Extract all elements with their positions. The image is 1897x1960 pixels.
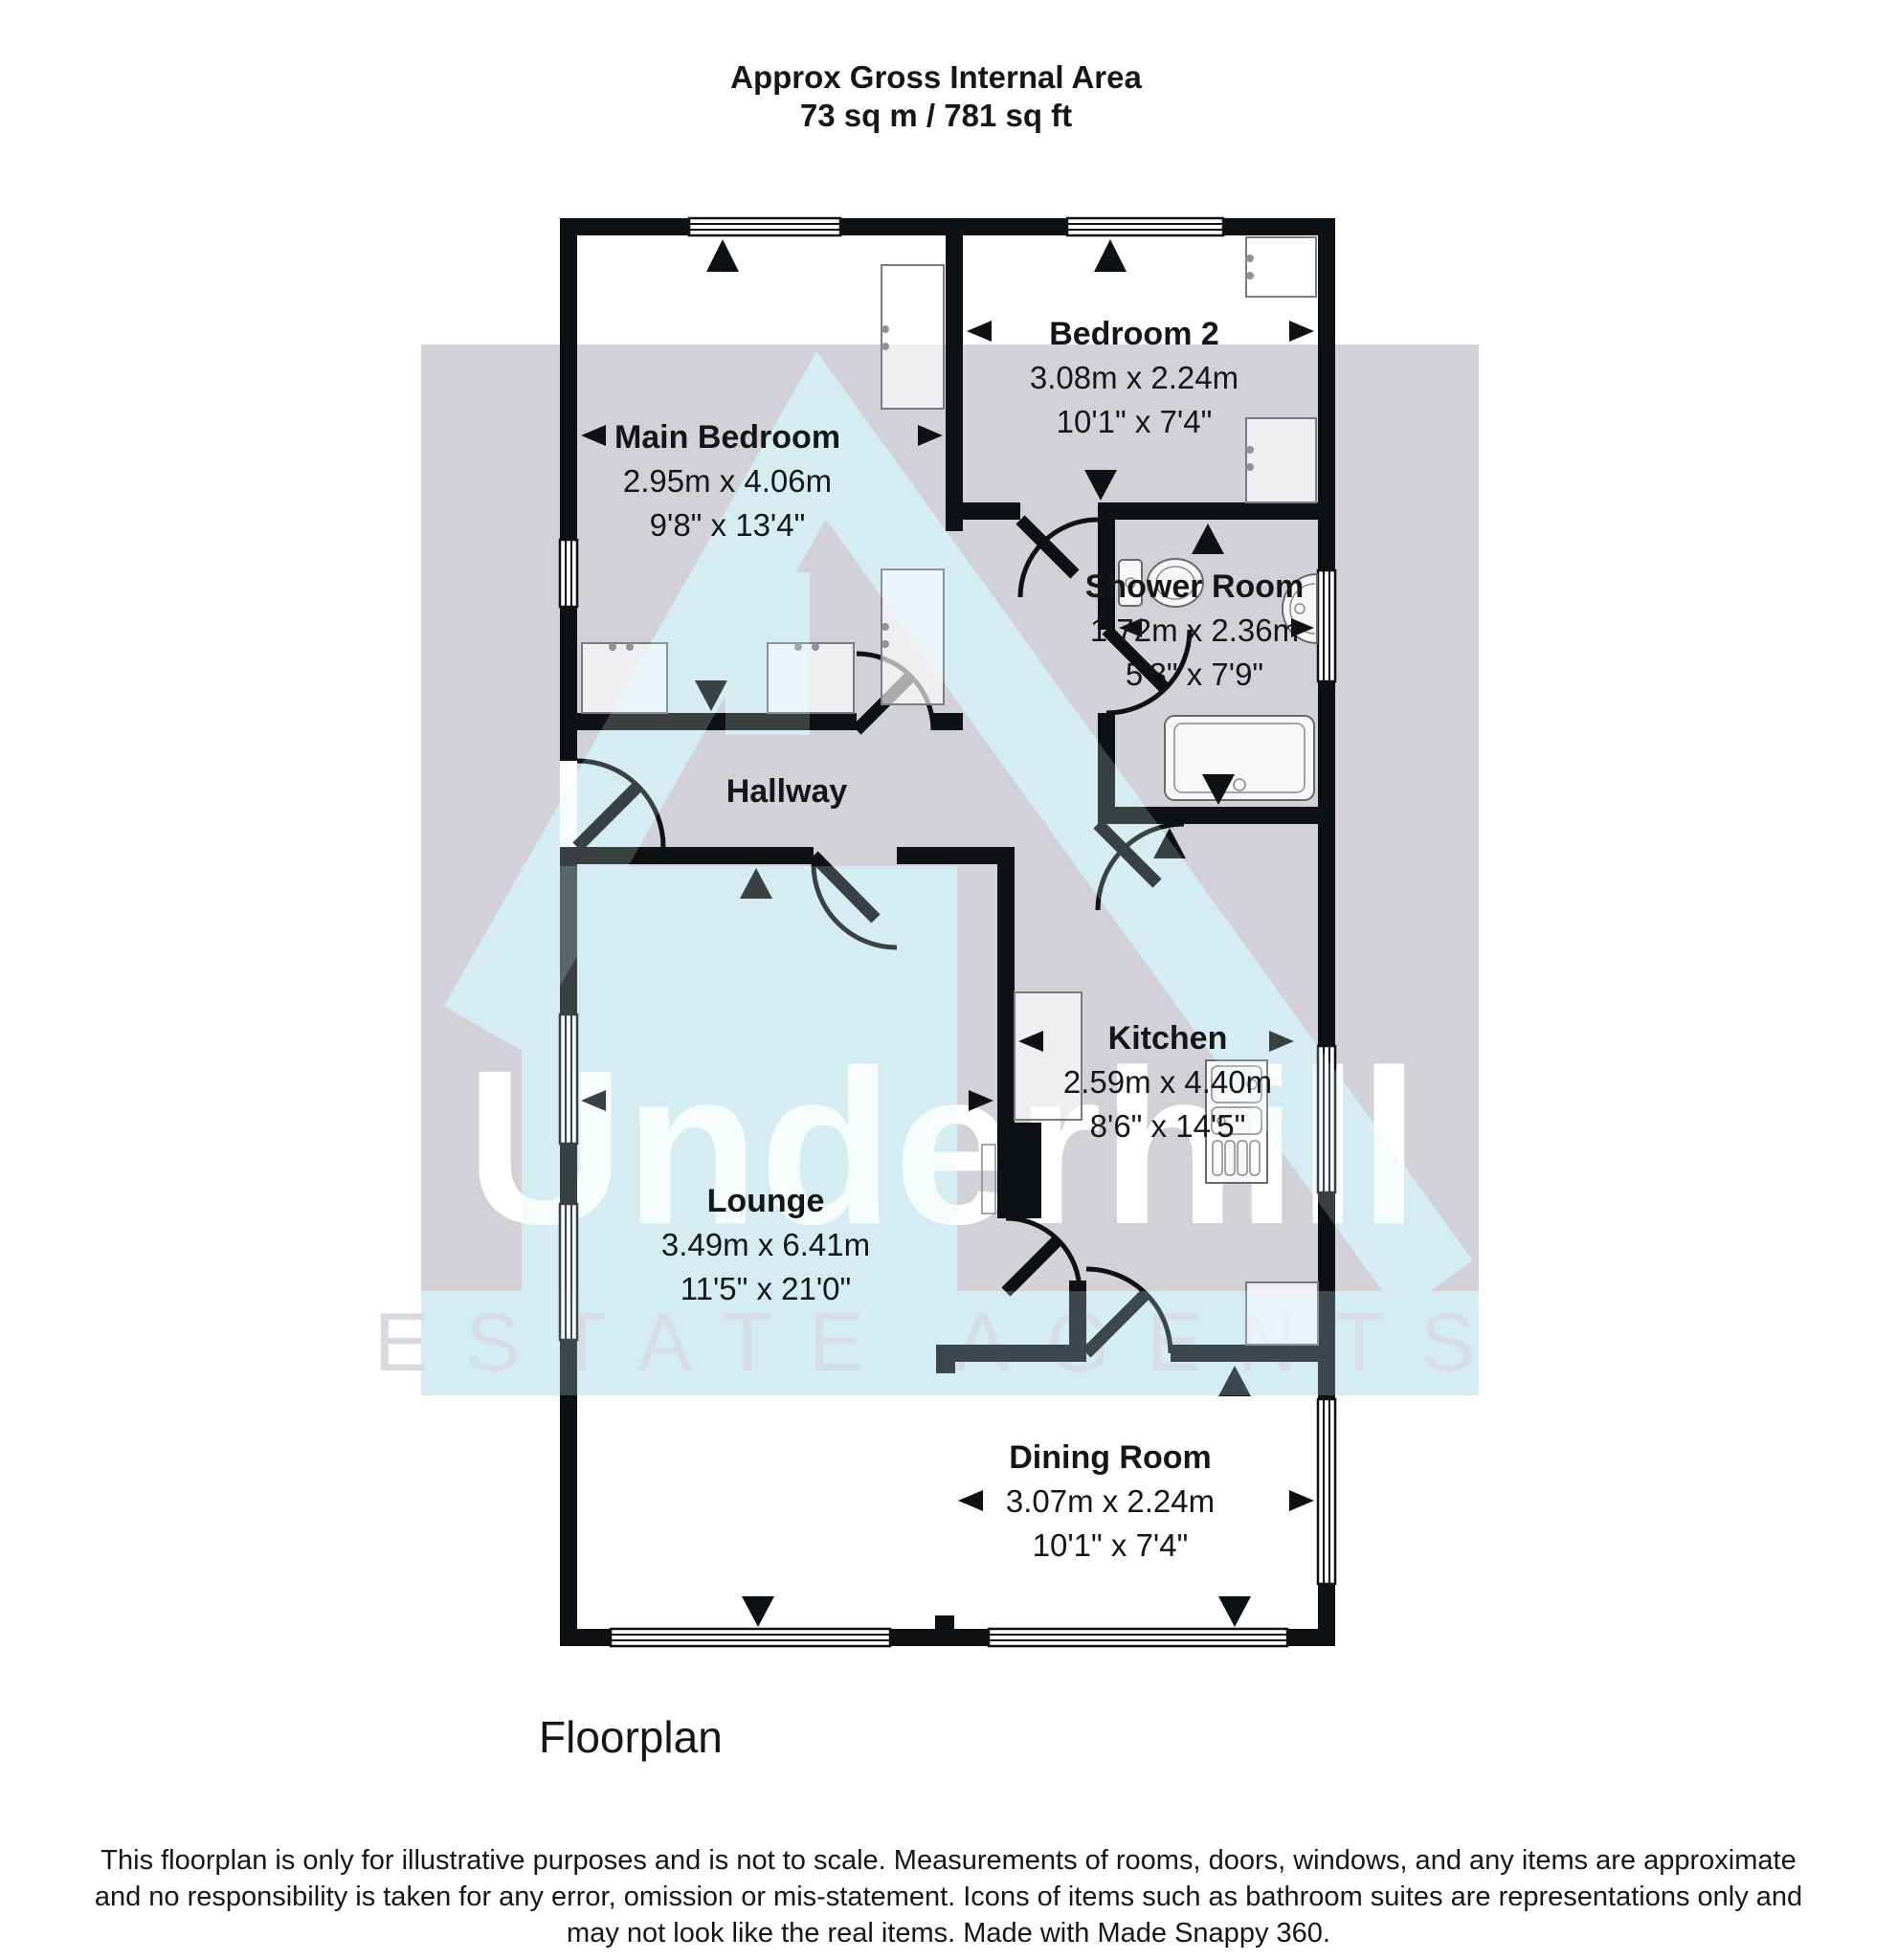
wardrobe-icon [882,265,944,409]
kitchen-cupboard [1246,1282,1318,1345]
room-label-shower-room: Shower Room 1.72m x 2.36m 5'8" x 7'9" [1085,565,1305,697]
room-dim-metric: 3.49m x 6.41m [661,1223,870,1267]
room-label-dining-room: Dining Room 3.07m x 2.24m 10'1" x 7'4" [1006,1436,1215,1568]
room-dim-imperial: 5'8" x 7'9" [1085,653,1305,697]
wall-kitchen-bottom [936,1345,1086,1362]
room-label-main-bedroom: Main Bedroom 2.95m x 4.06m 9'8" x 13'4" [614,415,840,547]
measure-arrow-right-icon [1289,1490,1314,1511]
wall-bedroom2-bottom-b [1098,502,1335,520]
shower-tray-icon [1165,716,1314,800]
measure-arrow-right-icon [1289,321,1314,342]
window-icon [989,1629,1287,1646]
wardrobe-icon [1246,418,1316,502]
wall-bedroom2-bottom-a [963,502,1020,520]
room-name: Hallway [726,769,848,813]
watermark-brand-text: Underhill [466,1024,1420,1270]
wall-kitchen-left [997,864,1015,1123]
window-icon [611,1629,890,1646]
window-icon [1067,218,1223,235]
marker-triangle-icon [742,1596,774,1627]
room-dim-metric: 2.95m x 4.06m [614,459,840,503]
room-dim-imperial: 9'8" x 13'4" [614,503,840,547]
window-icon [560,1204,577,1340]
front-door-opening [560,761,577,847]
room-label-kitchen: Kitchen 2.59m x 4.40m 8'6" x 14'5" [1063,1016,1272,1148]
room-label-lounge: Lounge 3.49m x 6.41m 11'5" x 21'0" [661,1179,870,1311]
disclaimer-line3: may not look like the real items. Made w… [0,1918,1897,1949]
floorplan-caption: Floorplan [539,1711,723,1763]
wall-hallway-bottom-b [897,847,1015,864]
floorplan-page: Underhill ESTATE AGENTS [0,0,1897,1960]
room-dim-metric: 3.07m x 2.24m [1006,1480,1215,1524]
wall-bedroom-divider [946,235,963,531]
wall-kitchen-bottom-foot [936,1362,955,1373]
room-dim-imperial: 8'6" x 14'5" [1063,1104,1272,1148]
room-dim-metric: 2.59m x 4.40m [1063,1060,1272,1104]
room-name: Main Bedroom [614,415,840,459]
window-icon [689,218,840,235]
disclaimer-line1: This floorplan is only for illustrative … [0,1845,1897,1877]
wall-dining-stub [935,1615,954,1629]
window-icon [560,540,577,607]
room-label-bedroom-2: Bedroom 2 3.08m x 2.24m 10'1" x 7'4" [1030,312,1239,444]
watermark-underlay: Underhill ESTATE AGENTS [374,345,1512,1395]
wardrobe-icon [582,643,667,713]
marker-triangle-icon [1218,1596,1251,1627]
wardrobe-icon [882,569,944,704]
window-icon [1318,1399,1335,1584]
room-name: Bedroom 2 [1030,312,1239,356]
room-dim-metric: 1.72m x 2.36m [1085,609,1305,653]
page-title-line2: 73 sq m / 781 sq ft [800,98,1072,134]
room-dim-imperial: 10'1" x 7'4" [1030,400,1239,444]
wall-exterior-left [560,218,577,1646]
measure-arrow-left-icon [958,1490,983,1511]
window-icon [560,1014,577,1144]
wall-dining-top [1171,1345,1335,1362]
disclaimer-line2: and no responsibility is taken for any e… [0,1882,1897,1913]
wall-hallway-bottom-a [577,847,814,864]
marker-triangle-icon [706,239,739,272]
room-dim-imperial: 11'5" x 21'0" [661,1267,870,1311]
room-label-hallway: Hallway [726,769,848,813]
measure-arrow-left-icon [967,321,992,342]
window-icon [1318,1046,1335,1192]
floorplan-svg: Underhill ESTATE AGENTS [0,0,1897,1960]
wall-mainbedroom-bottom-a [577,713,857,730]
room-name: Shower Room [1085,565,1305,609]
room-dim-imperial: 10'1" x 7'4" [1006,1524,1215,1568]
marker-triangle-icon [1094,239,1127,272]
room-name: Lounge [661,1179,870,1223]
room-name: Kitchen [1063,1016,1272,1060]
window-icon [1318,570,1335,681]
wardrobe-icon [768,643,854,713]
wall-mainbedroom-bottom-b [933,713,963,730]
page-title-line1: Approx Gross Internal Area [730,59,1142,96]
watermark-tagline-text: ESTATE AGENTS [374,1297,1512,1389]
wardrobe-icon [1246,237,1316,297]
chimney-breast [997,1123,1041,1218]
room-dim-metric: 3.08m x 2.24m [1030,356,1239,400]
room-name: Dining Room [1006,1436,1215,1480]
wall-shower-bottom [1098,807,1335,824]
